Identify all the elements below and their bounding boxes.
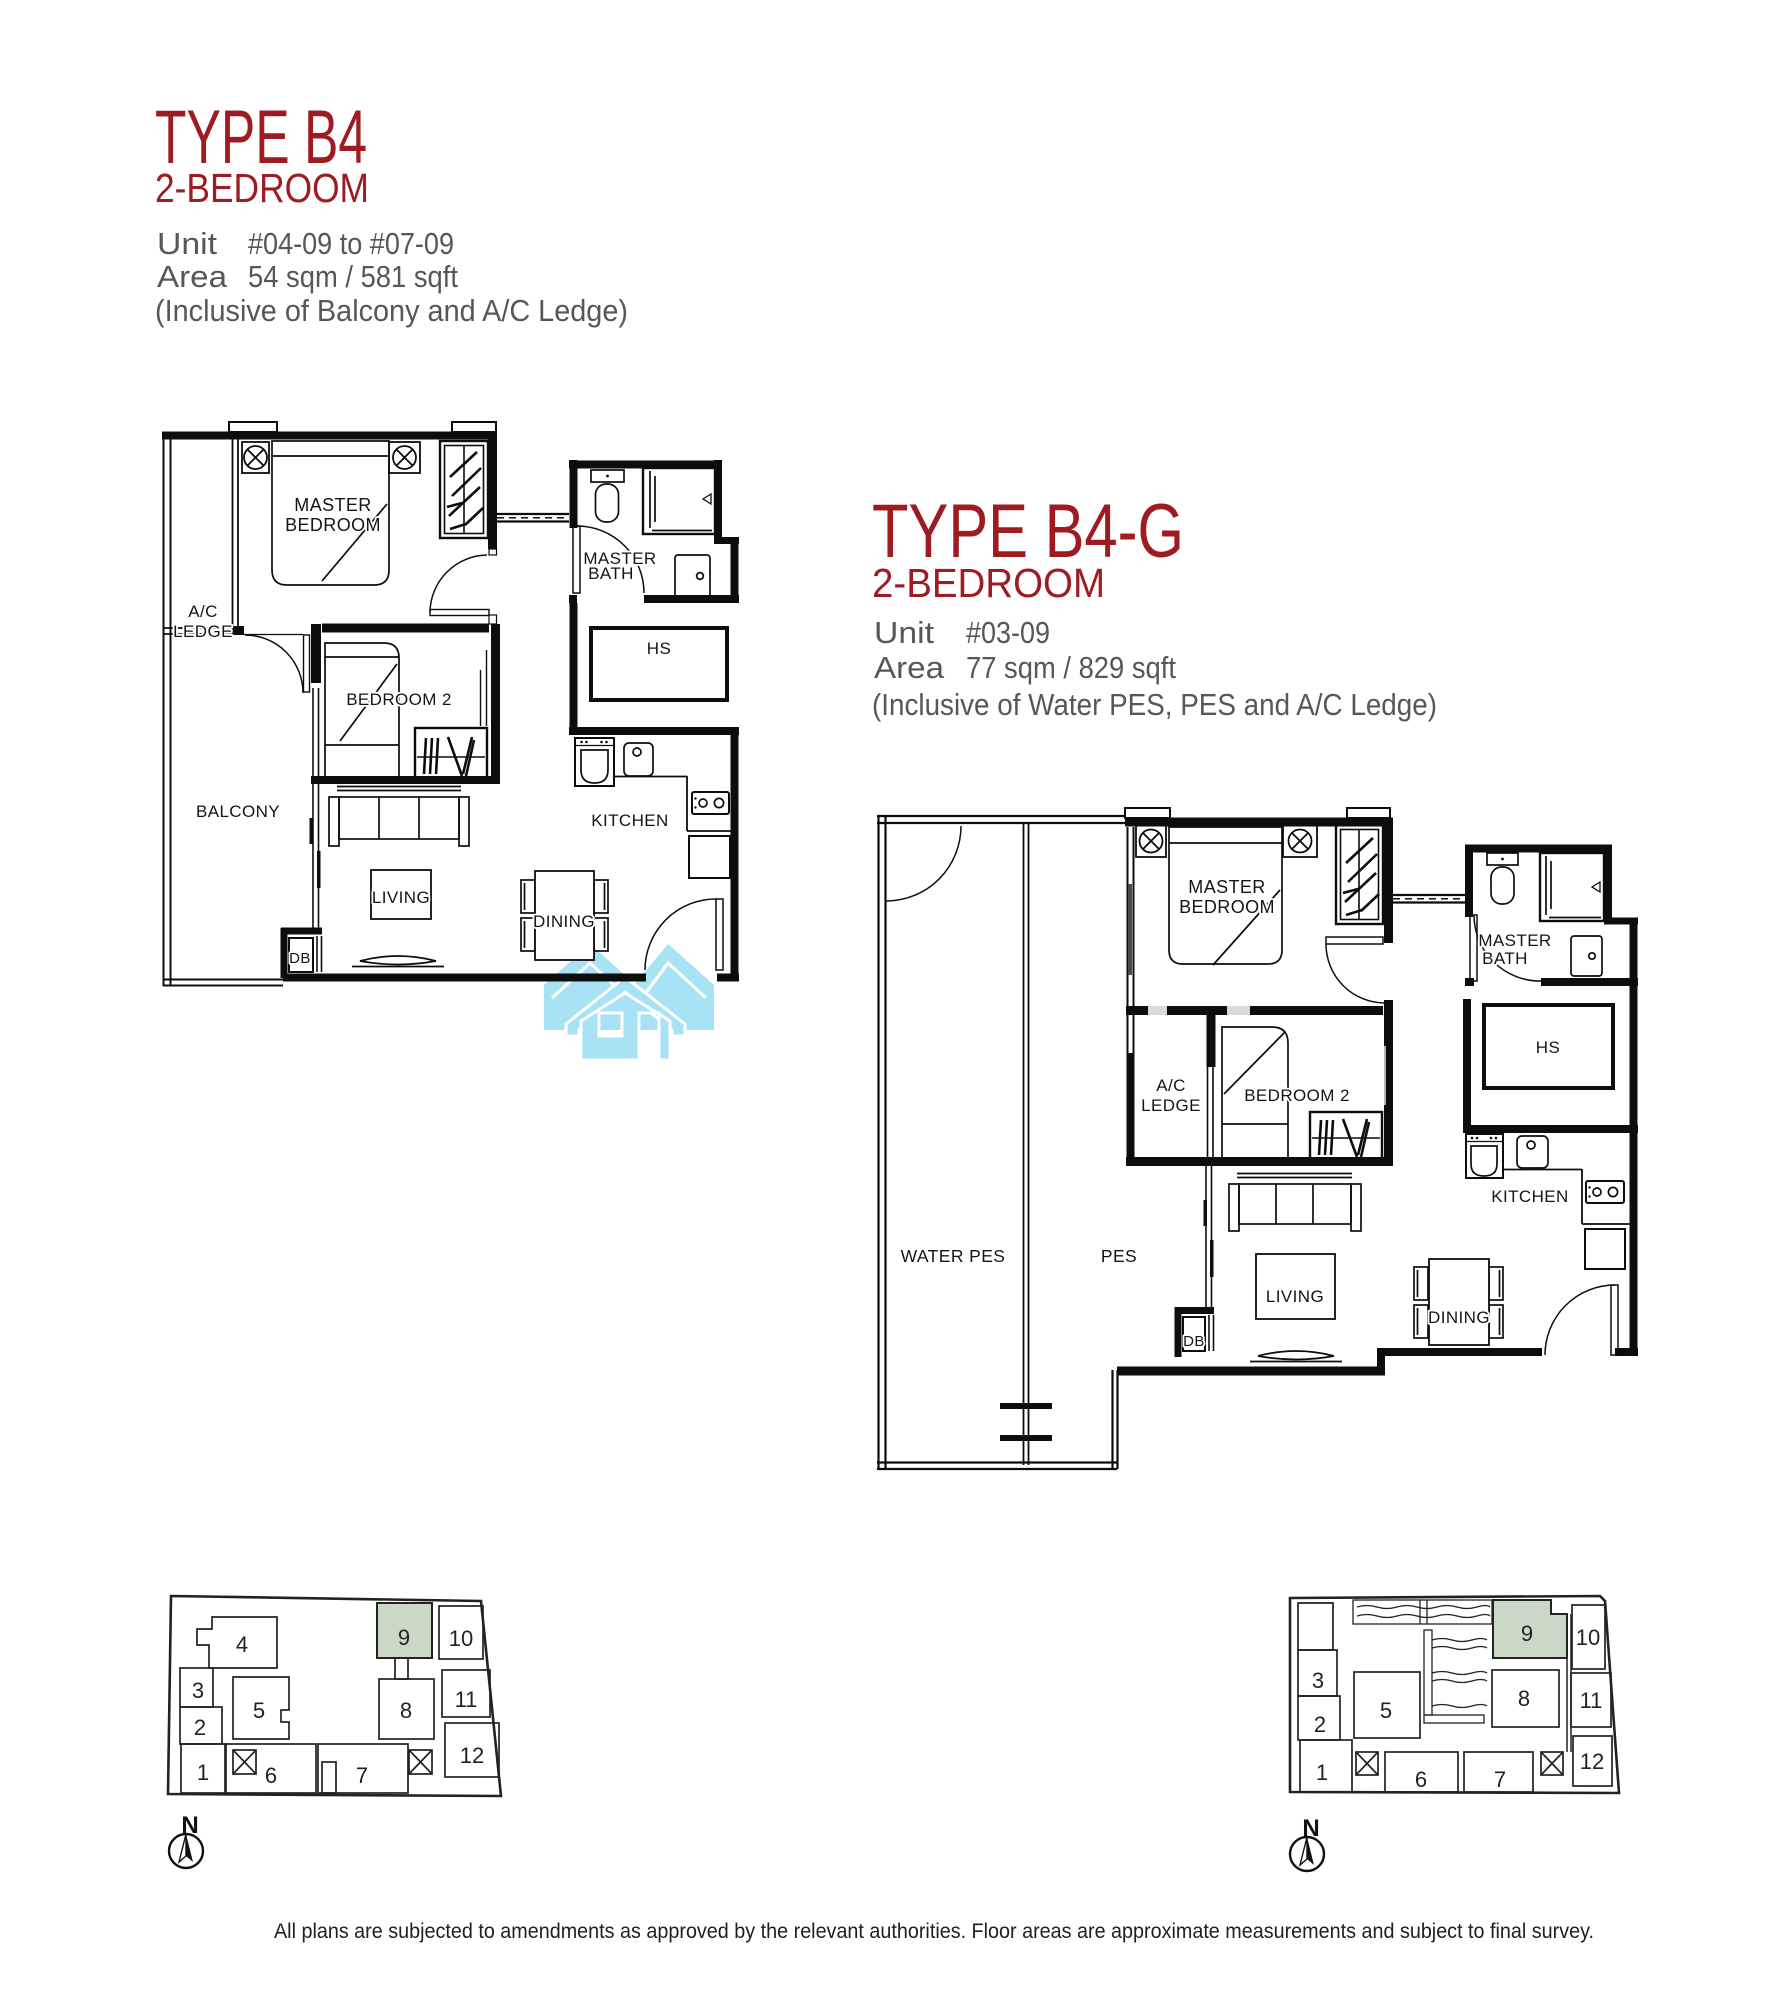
- svg-text:BEDROOM 2: BEDROOM 2: [346, 690, 452, 709]
- svg-text:5: 5: [253, 1698, 265, 1723]
- svg-text:Unit: Unit: [874, 615, 934, 650]
- svg-text:DB: DB: [1183, 1333, 1205, 1350]
- svg-text:BATH: BATH: [1482, 949, 1528, 968]
- svg-text:4: 4: [236, 1632, 248, 1657]
- svg-text:WATER PES: WATER PES: [901, 1246, 1006, 1266]
- svg-text:2: 2: [194, 1715, 206, 1740]
- svg-text:12: 12: [460, 1743, 484, 1768]
- svg-text:DINING: DINING: [533, 912, 595, 931]
- svg-text:5: 5: [1380, 1698, 1392, 1723]
- svg-text:10: 10: [1576, 1625, 1600, 1650]
- svg-text:8: 8: [400, 1698, 412, 1723]
- svg-text:HS: HS: [647, 639, 671, 658]
- svg-text:PES: PES: [1101, 1246, 1137, 1266]
- svg-text:Area: Area: [157, 259, 228, 294]
- svg-text:#04-09 to #07-09: #04-09 to #07-09: [248, 226, 454, 261]
- svg-text:MASTER: MASTER: [294, 495, 371, 515]
- svg-text:6: 6: [1415, 1767, 1427, 1792]
- svg-text:#03-09: #03-09: [966, 615, 1050, 650]
- svg-text:BEDROOM: BEDROOM: [285, 515, 381, 535]
- svg-text:7: 7: [356, 1763, 368, 1788]
- svg-text:10: 10: [449, 1626, 473, 1651]
- svg-text:A/C: A/C: [1156, 1076, 1186, 1095]
- svg-text:DB: DB: [289, 950, 311, 967]
- svg-text:KITCHEN: KITCHEN: [1491, 1187, 1568, 1206]
- svg-text:1: 1: [1316, 1760, 1328, 1785]
- svg-text:9: 9: [398, 1625, 410, 1650]
- svg-text:7: 7: [1494, 1767, 1506, 1792]
- svg-text:54 sqm / 581 sqft: 54 sqm / 581 sqft: [248, 259, 458, 294]
- svg-text:2-BEDROOM: 2-BEDROOM: [155, 165, 369, 211]
- svg-text:12: 12: [1580, 1749, 1604, 1774]
- svg-text:BEDROOM 2: BEDROOM 2: [1244, 1086, 1350, 1105]
- svg-text:All plans are subjected to ame: All plans are subjected to amendments as…: [274, 1920, 1594, 1943]
- svg-text:LIVING: LIVING: [1266, 1287, 1324, 1306]
- svg-text:KITCHEN: KITCHEN: [591, 811, 668, 830]
- svg-text:MASTER: MASTER: [1188, 877, 1265, 897]
- svg-text:A/C: A/C: [188, 602, 218, 621]
- svg-text:11: 11: [455, 1687, 478, 1712]
- svg-text:11: 11: [1580, 1688, 1603, 1713]
- svg-text:LEDGE: LEDGE: [173, 622, 233, 641]
- svg-text:Unit: Unit: [157, 226, 217, 261]
- svg-text:Area: Area: [874, 650, 945, 685]
- svg-text:(Inclusive of Balcony and A/C: (Inclusive of Balcony and A/C Ledge): [155, 293, 628, 328]
- svg-text:MASTER: MASTER: [1478, 931, 1551, 950]
- svg-text:BATH: BATH: [588, 564, 634, 583]
- svg-text:77 sqm / 829 sqft: 77 sqm / 829 sqft: [966, 650, 1176, 685]
- svg-text:9: 9: [1521, 1621, 1533, 1646]
- svg-text:1: 1: [197, 1760, 209, 1785]
- svg-text:2: 2: [1314, 1712, 1326, 1737]
- svg-text:8: 8: [1518, 1686, 1530, 1711]
- svg-text:BEDROOM: BEDROOM: [1179, 897, 1275, 917]
- svg-text:BALCONY: BALCONY: [196, 802, 280, 821]
- svg-text:DINING: DINING: [1428, 1308, 1490, 1327]
- svg-text:3: 3: [192, 1678, 204, 1703]
- svg-text:HS: HS: [1536, 1038, 1560, 1057]
- svg-text:3: 3: [1312, 1668, 1324, 1693]
- svg-text:6: 6: [265, 1763, 277, 1788]
- svg-text:LIVING: LIVING: [372, 888, 430, 907]
- svg-text:2-BEDROOM: 2-BEDROOM: [872, 560, 1105, 606]
- svg-text:(Inclusive of Water PES, PES a: (Inclusive of Water PES, PES and A/C Led…: [872, 687, 1437, 722]
- svg-text:LEDGE: LEDGE: [1141, 1096, 1201, 1115]
